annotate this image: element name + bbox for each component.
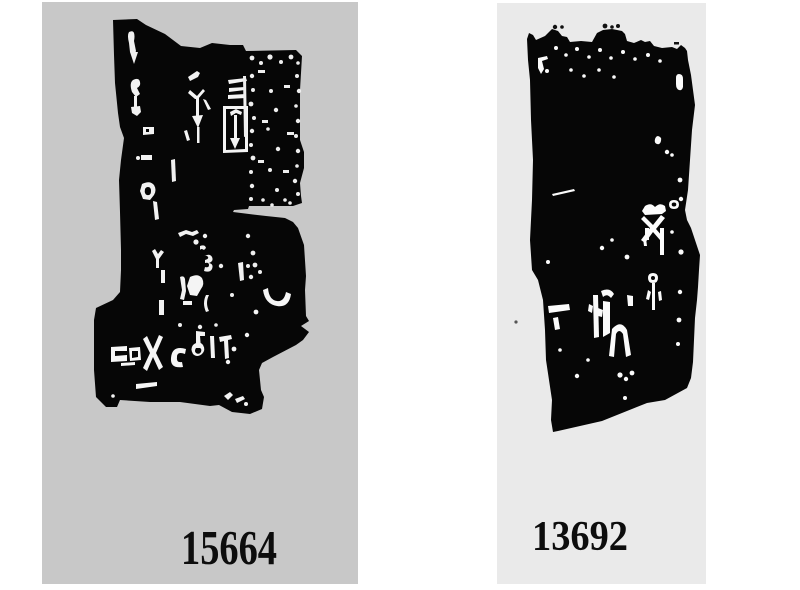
svg-text:15664: 15664 — [181, 520, 277, 575]
svg-text:13692: 13692 — [532, 514, 628, 560]
